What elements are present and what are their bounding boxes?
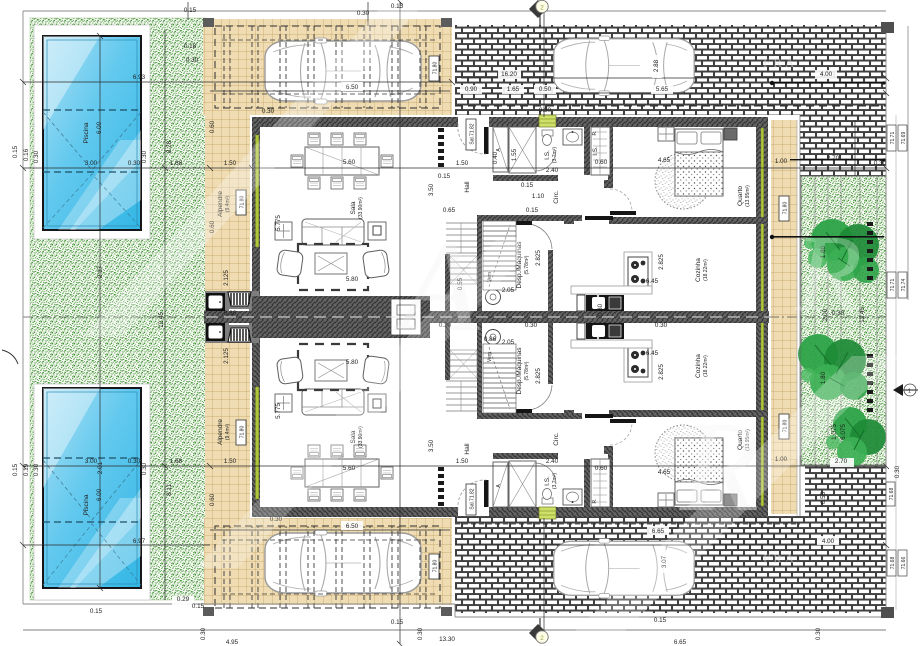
svg-text:0.15: 0.15: [438, 173, 451, 180]
svg-text:FRA: FRA: [763, 551, 797, 566]
svg-text:0.16: 0.16: [23, 148, 30, 161]
svg-text:R.: R.: [592, 131, 598, 136]
svg-text:0.30: 0.30: [894, 465, 901, 478]
svg-text:Vem: Vem: [487, 352, 493, 362]
svg-text:1.68: 1.68: [170, 458, 183, 465]
svg-text:0.60: 0.60: [209, 120, 216, 133]
svg-text:3.00: 3.00: [85, 160, 98, 167]
svg-text:1.68: 1.68: [170, 160, 183, 167]
svg-text:0.15: 0.15: [12, 145, 19, 158]
svg-text:FRA: FRA: [763, 55, 797, 70]
svg-text:0.86: 0.86: [484, 336, 497, 343]
svg-text:2.825: 2.825: [535, 250, 542, 266]
svg-text:4.00: 4.00: [820, 71, 833, 78]
svg-text:(13.95m²): (13.95m²): [745, 185, 751, 207]
svg-text:1.55: 1.55: [511, 148, 518, 161]
svg-text:(3.7m²): (3.7m²): [552, 147, 558, 163]
svg-text:Circ.: Circ.: [553, 190, 560, 204]
svg-text:5.60: 5.60: [343, 159, 356, 166]
svg-text:Quarto: Quarto: [737, 186, 744, 206]
svg-text:Cozinha: Cozinha: [695, 354, 702, 378]
svg-text:16.20: 16.20: [501, 71, 517, 78]
svg-text:0.30: 0.30: [417, 627, 424, 640]
svg-text:I.S.: I.S.: [544, 476, 551, 486]
svg-text:8.11: 8.11: [166, 484, 173, 496]
svg-text:71.80: 71.80: [240, 426, 246, 439]
svg-text:0.60: 0.60: [209, 493, 216, 506]
svg-text:0.30: 0.30: [33, 150, 40, 163]
svg-text:(5.78m²): (5.78m²): [524, 255, 530, 274]
svg-text:0.29: 0.29: [177, 596, 190, 603]
svg-text:2.05: 2.05: [502, 287, 515, 294]
svg-text:2.825: 2.825: [535, 368, 542, 384]
svg-text:0.30: 0.30: [655, 322, 668, 329]
svg-text:Desp./Máquinas: Desp./Máquinas: [516, 347, 523, 395]
svg-text:6.50: 6.50: [346, 523, 359, 530]
svg-text:5.775: 5.775: [275, 215, 282, 231]
svg-text:0.15: 0.15: [192, 603, 205, 610]
svg-text:1.10: 1.10: [532, 193, 545, 200]
svg-text:Sala: Sala: [350, 201, 357, 214]
svg-text:0.40: 0.40: [492, 151, 499, 164]
svg-text:(5.78m²): (5.78m²): [524, 361, 530, 380]
svg-text:0.30: 0.30: [224, 310, 237, 317]
svg-text:2.825: 2.825: [658, 364, 665, 380]
svg-text:2.125: 2.125: [223, 270, 230, 286]
svg-text:0.90: 0.90: [465, 86, 478, 93]
svg-text:6.65: 6.65: [674, 639, 687, 646]
svg-text:0.30: 0.30: [597, 303, 604, 316]
svg-text:R.: R.: [592, 499, 598, 504]
svg-text:5.775: 5.775: [275, 403, 282, 419]
svg-text:0.30: 0.30: [33, 463, 40, 476]
svg-text:Piscina: Piscina: [83, 494, 90, 515]
svg-text:0.30: 0.30: [141, 150, 148, 163]
svg-text:3.50: 3.50: [428, 439, 435, 452]
svg-text:71.80: 71.80: [783, 202, 789, 215]
svg-text:0.15: 0.15: [90, 608, 103, 615]
svg-text:R: R: [794, 212, 862, 334]
svg-text:1.50: 1.50: [456, 458, 469, 465]
svg-text:4.65: 4.65: [658, 157, 671, 164]
svg-text:1.50: 1.50: [224, 160, 237, 167]
svg-text:6.65: 6.65: [652, 528, 665, 535]
svg-text:71.71: 71.71: [890, 132, 896, 145]
svg-text:1: 1: [908, 389, 911, 395]
svg-text:0.30: 0.30: [262, 108, 275, 115]
svg-text:Alpendre: Alpendre: [217, 419, 224, 445]
svg-text:0.30: 0.30: [525, 322, 538, 329]
svg-text:1.65: 1.65: [507, 86, 520, 93]
svg-text:0.30: 0.30: [815, 627, 822, 640]
svg-text:I.S.: I.S.: [544, 150, 551, 160]
svg-text:Sal.71.82: Sal.71.82: [470, 488, 476, 509]
svg-text:2.37: 2.37: [97, 265, 104, 278]
svg-text:0.30: 0.30: [200, 627, 207, 640]
svg-text:2.01: 2.01: [97, 461, 104, 474]
svg-text:6.075: 6.075: [840, 424, 847, 440]
svg-text:A: A: [392, 215, 480, 359]
svg-text:(33.90m²): (33.90m²): [358, 197, 364, 219]
svg-text:2.88: 2.88: [653, 59, 660, 72]
svg-text:1.50: 1.50: [224, 458, 237, 465]
svg-text:6.93: 6.93: [133, 74, 146, 81]
svg-text:2.05: 2.05: [502, 339, 515, 346]
svg-text:0.65: 0.65: [443, 207, 456, 214]
svg-text:0.15: 0.15: [184, 7, 197, 14]
svg-text:13.30: 13.30: [439, 636, 455, 643]
svg-text:2.825: 2.825: [658, 254, 665, 270]
svg-text:4.65: 4.65: [658, 469, 671, 476]
svg-text:Piscina: Piscina: [83, 122, 90, 143]
svg-text:I.S.: I.S.: [592, 146, 599, 156]
svg-text:(3.7m²): (3.7m²): [552, 473, 558, 489]
svg-text:(18.22m²): (18.22m²): [703, 355, 709, 377]
svg-text:12.45: 12.45: [158, 312, 165, 328]
svg-text:5.60: 5.60: [343, 465, 356, 472]
svg-text:8.28: 8.28: [166, 140, 173, 153]
svg-text:3.00: 3.00: [85, 458, 98, 465]
svg-text:2.40: 2.40: [546, 167, 559, 174]
svg-text:Hall: Hall: [464, 181, 471, 193]
svg-text:3.50: 3.50: [428, 183, 435, 196]
svg-text:6.00: 6.00: [96, 121, 103, 134]
svg-text:0.50: 0.50: [539, 86, 552, 93]
svg-text:Cozinha: Cozinha: [695, 258, 702, 282]
svg-text:0.60: 0.60: [595, 159, 608, 166]
svg-text:0.30: 0.30: [128, 160, 141, 167]
svg-text:0.15: 0.15: [12, 463, 19, 476]
svg-text:1.075: 1.075: [831, 424, 838, 440]
svg-text:2: 2: [540, 635, 544, 642]
svg-text:4.00: 4.00: [822, 538, 835, 545]
svg-text:(9.4m²): (9.4m²): [225, 424, 231, 440]
svg-text:5.80: 5.80: [346, 359, 359, 366]
svg-text:71.80: 71.80: [433, 62, 439, 75]
svg-text:71.68: 71.68: [890, 557, 896, 570]
svg-text:2.125: 2.125: [223, 348, 230, 364]
svg-text:0.30: 0.30: [141, 462, 148, 475]
svg-text:0.30: 0.30: [357, 10, 370, 17]
svg-text:0.30: 0.30: [539, 107, 552, 114]
svg-text:6.45: 6.45: [646, 278, 659, 285]
svg-text:0.60: 0.60: [595, 465, 608, 472]
svg-text:0.18: 0.18: [184, 43, 197, 50]
svg-text:71.80: 71.80: [433, 560, 439, 573]
svg-text:Hall: Hall: [464, 443, 471, 455]
svg-text:0.15: 0.15: [526, 207, 539, 214]
svg-text:4.95: 4.95: [226, 639, 239, 646]
svg-text:71.69: 71.69: [901, 132, 907, 145]
svg-text:5.65: 5.65: [656, 86, 669, 93]
svg-text:71.74: 71.74: [901, 279, 907, 292]
svg-text:0.30: 0.30: [186, 57, 199, 64]
svg-text:0.19: 0.19: [23, 463, 30, 476]
svg-text:5.80: 5.80: [346, 276, 359, 283]
svg-text:(18.22m²): (18.22m²): [703, 259, 709, 281]
svg-text:0.55: 0.55: [820, 491, 827, 504]
svg-text:0.15: 0.15: [391, 619, 404, 626]
svg-text:0.30: 0.30: [128, 458, 141, 465]
svg-text:Circ.: Circ.: [553, 432, 560, 446]
svg-text:6.97: 6.97: [133, 538, 146, 545]
svg-text:2.70: 2.70: [827, 155, 840, 162]
svg-text:2.40: 2.40: [546, 458, 559, 465]
svg-text:2.70: 2.70: [835, 458, 848, 465]
svg-text:71.68: 71.68: [889, 488, 895, 501]
svg-text:R: R: [679, 395, 759, 539]
svg-text:2: 2: [540, 4, 544, 11]
svg-text:1.50: 1.50: [456, 160, 469, 167]
svg-text:0.15: 0.15: [521, 182, 534, 189]
svg-text:71.66: 71.66: [901, 557, 907, 570]
svg-text:1.00: 1.00: [775, 158, 788, 165]
svg-text:71.71: 71.71: [890, 279, 896, 292]
svg-text:Sal.71.82: Sal.71.82: [470, 123, 476, 144]
svg-text:6.45: 6.45: [646, 350, 659, 357]
svg-text:0.15: 0.15: [654, 617, 667, 624]
svg-text:6.00: 6.00: [96, 488, 103, 501]
